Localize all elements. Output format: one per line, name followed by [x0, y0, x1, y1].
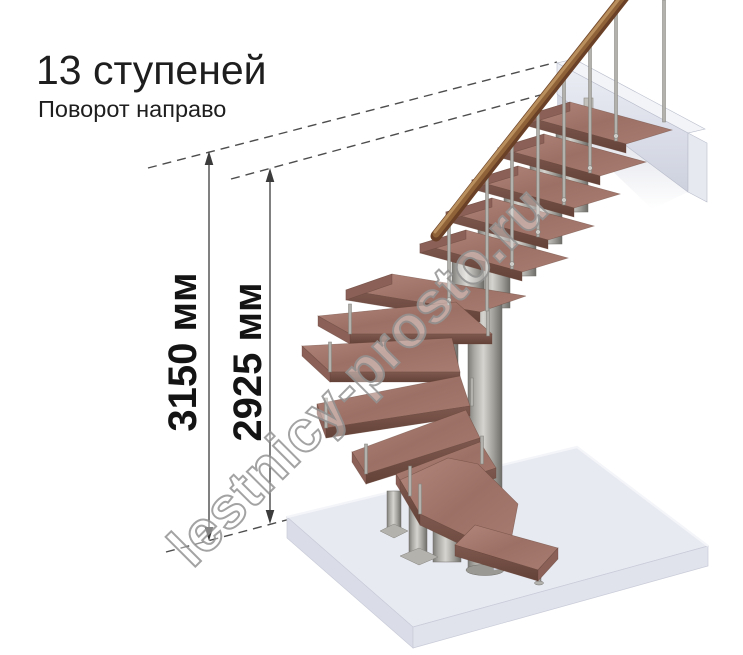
baluster-stub [481, 436, 484, 464]
arrow-up-2925 [266, 168, 275, 182]
dimension-label-total: 3150 мм [161, 272, 205, 431]
page-subtitle: Поворот направо [38, 96, 226, 122]
baluster-connector [588, 166, 593, 171]
baluster-stub [365, 444, 368, 474]
baluster-stub [487, 308, 490, 336]
diagram-canvas: 13 ступеней Поворот направо 3150 мм 2925… [0, 0, 743, 655]
page-title: 13 ступеней [36, 47, 267, 93]
baluster-connector [562, 198, 567, 203]
baluster [563, 73, 566, 205]
beam-end-face [688, 133, 707, 202]
dimension-label-flight: 2925 мм [226, 282, 270, 441]
baluster [615, 0, 618, 141]
arrow-up-3150 [205, 151, 214, 165]
step1-rod-foot [535, 581, 544, 585]
baluster-stub [471, 378, 474, 406]
baluster-connector [614, 134, 619, 139]
baluster-stub [419, 484, 422, 514]
baluster [663, 0, 666, 122]
baluster-stub [349, 304, 352, 334]
baluster-stub [409, 466, 412, 496]
baluster [589, 40, 592, 173]
staircase-diagram: 13 ступеней Поворот направо 3150 мм 2925… [0, 0, 743, 655]
